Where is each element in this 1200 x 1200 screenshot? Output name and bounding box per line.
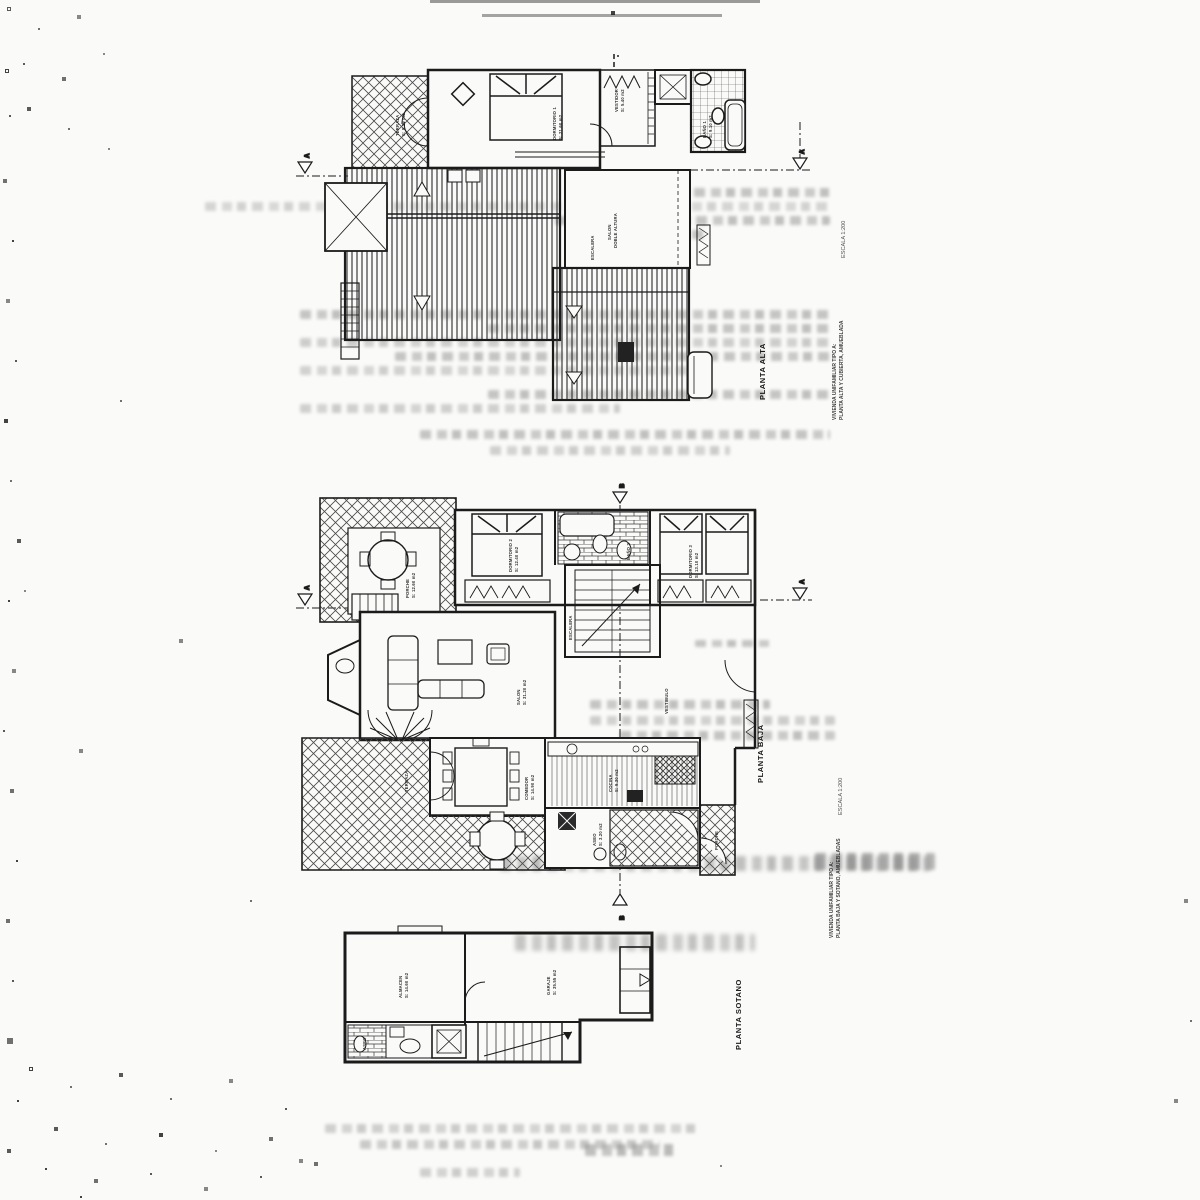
shower [655,70,691,104]
svg-text:BAÑO 1: BAÑO 1 [702,121,707,138]
bathtub [725,100,745,150]
scale-note: ESCALA 1:200 [841,221,847,258]
caption-planta-sotano: PLANTA SOTANO [734,979,743,1050]
caption-planta-alta: PLANTA ALTA [758,343,767,400]
svg-text:PORCHE: PORCHE [405,579,410,598]
marker-letter: A [305,153,311,158]
svg-text:S: 3.20 m2: S: 3.20 m2 [598,823,603,846]
svg-text:TERRAZA: TERRAZA [395,115,400,136]
svg-text:DORMITORIO 2: DORMITORIO 2 [508,538,513,572]
sotano-room-labels: ALMACEN S: 14.60 m2 GARAJE S: 35.55 m2 A… [362,969,557,1050]
titleblock-line2: PLANTA BAJA Y SOTANO, AMUEBLADAS [836,838,842,938]
svg-text:GARAJE: GARAJE [546,976,551,995]
radiator [697,225,710,265]
svg-text:COCINA: COCINA [608,774,613,792]
section-marker-a-left: A [298,153,312,173]
svg-text:ESCALERA: ESCALERA [568,615,573,640]
titleblock-line1: VIVIENDA UNIFAMILIAR TIPO A: [832,343,838,420]
svg-text:B: B [620,915,626,920]
svg-text:BAÑO 2: BAÑO 2 [626,543,631,560]
svg-text:S: 31.20 m2: S: 31.20 m2 [522,679,527,705]
svg-text:S: 12.40 m2: S: 12.40 m2 [514,546,519,572]
svg-text:PORCHE: PORCHE [714,831,719,850]
svg-text:S: 9.10 m2: S: 9.10 m2 [708,115,713,138]
svg-text:DORMITORIO 3: DORMITORIO 3 [688,544,693,578]
svg-text:S: 35.55 m2: S: 35.55 m2 [552,969,557,995]
svg-text:TERRAZA: TERRAZA [404,771,409,792]
garage-ramp [620,947,650,1013]
svg-text:ESCALERA: ESCALERA [590,235,595,260]
scale-note: ESCALA 1:200 [838,778,844,815]
svg-text:DOBLE ALTURA: DOBLE ALTURA [613,213,618,248]
svg-text:S: 9.20 m2: S: 9.20 m2 [401,113,406,136]
svg-text:DORMITORIO 1: DORMITORIO 1 [552,106,557,140]
chimney [325,183,387,251]
section-marker-a-left2: A [298,585,312,605]
washer [558,812,576,830]
plan-baja: A A B B [296,483,844,938]
plan-alta: A A [296,54,847,420]
caption-planta-baja: PLANTA BAJA [756,724,765,783]
svg-text:VESTIDOR: VESTIDOR [614,89,619,112]
section-marker-b-top: B [613,483,627,503]
shower [432,1025,466,1058]
svg-text:ALMACEN: ALMACEN [398,976,403,998]
stairs [478,1022,572,1062]
titleblock-line1: VIVIENDA UNIFAMILIAR TIPO A: [829,861,835,938]
scanned-plan-sheet: A A [0,0,1200,1200]
svg-text:COMEDOR: COMEDOR [524,777,529,800]
svg-text:S: 9.30 m2: S: 9.30 m2 [614,769,619,792]
svg-text:VESTIBULO: VESTIBULO [664,688,669,714]
svg-text:S: 14.90 m2: S: 14.90 m2 [530,774,535,800]
svg-text:ASEO: ASEO [592,833,597,846]
sofa [688,352,712,398]
svg-text:SALON: SALON [607,224,612,240]
section-marker-a-right2: A [793,579,807,599]
section-marker-a-right: A [793,149,807,169]
svg-text:S: 12.60 m2: S: 12.60 m2 [411,572,416,598]
svg-text:S: 5.40 m2: S: 5.40 m2 [620,89,625,112]
svg-text:S: 13.10 m2: S: 13.10 m2 [694,552,699,578]
marker-letter: A [800,149,806,154]
svg-text:SALON: SALON [516,689,521,705]
plan-sotano: ALMACEN S: 14.60 m2 GARAJE S: 35.55 m2 A… [345,926,743,1062]
svg-text:A: A [800,579,806,584]
plan-line-art: A A [0,0,1200,1200]
svg-text:S: 21.60 m2: S: 21.60 m2 [558,114,563,140]
svg-text:A: A [305,585,311,590]
titleblock-line2: PLANTA ALTA Y CUBIERTA, AMUEBLADA [839,320,845,420]
svg-text:B: B [620,483,626,488]
section-marker-b-bottom: B [613,894,627,920]
svg-text:S: 14.60 m2: S: 14.60 m2 [404,972,409,998]
svg-text:ASEO: ASEO [362,1037,367,1050]
